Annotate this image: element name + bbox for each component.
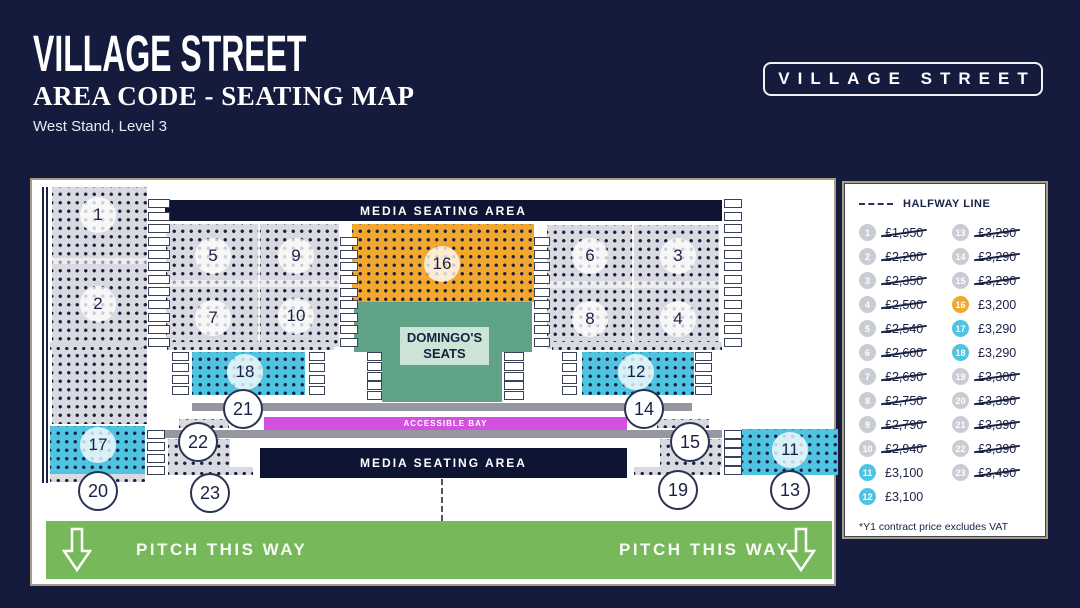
legend-row-section-8: 8£2,750	[859, 392, 952, 409]
price-label: £2,690	[885, 370, 923, 384]
section-badge-10: 10	[859, 440, 876, 457]
stair-step	[562, 352, 577, 361]
stair-step	[724, 224, 742, 233]
block-5-7-divider	[166, 280, 339, 287]
stair-step	[340, 313, 358, 322]
stairs	[309, 352, 325, 395]
section-badge-14: 14	[952, 248, 969, 265]
stair-step	[367, 381, 382, 390]
section-badge-4: 4	[859, 296, 876, 313]
legend-row-section-23: 23£3,490	[952, 464, 1016, 481]
stairs	[504, 352, 524, 400]
stair-step	[172, 386, 189, 395]
section-label-1: 1	[80, 197, 116, 233]
section-circle-20: 20	[78, 471, 118, 511]
stair-step	[172, 375, 189, 384]
stair-step	[724, 300, 742, 309]
stair-step	[147, 442, 165, 451]
stair-step	[148, 300, 170, 309]
price-label: £3,390	[978, 394, 1016, 408]
domingos-line2: SEATS	[423, 346, 465, 362]
price-label: £2,600	[885, 346, 923, 360]
stair-step	[724, 448, 742, 457]
stair-step	[724, 237, 742, 246]
stair-step	[534, 250, 550, 259]
legend-row-section-11: 11£3,100	[859, 464, 952, 481]
stair-step	[147, 454, 165, 463]
price-label: £3,290	[978, 322, 1016, 336]
price-label: £3,390	[978, 418, 1016, 432]
legend-row-section-15: 15£3,290	[952, 272, 1016, 289]
stair-step	[534, 300, 550, 309]
stair-step	[534, 275, 550, 284]
stairs	[172, 352, 189, 395]
stair-step	[340, 300, 358, 309]
stair-step	[147, 430, 165, 439]
stair-step	[367, 362, 382, 371]
legend-row-section-7: 7£2,690	[859, 368, 952, 385]
section-label-8: 8	[572, 301, 608, 337]
section-badge-8: 8	[859, 392, 876, 409]
stairs	[148, 199, 170, 347]
price-label: £3,290	[978, 226, 1016, 240]
legend-row-section-19: 19£3,300	[952, 368, 1016, 385]
section-badge-13: 13	[952, 224, 969, 241]
section-badge-18: 18	[952, 344, 969, 361]
legend-row-section-13: 13£3,290	[952, 224, 1016, 241]
down-arrow-icon	[786, 527, 816, 578]
legend-row-section-16: 16£3,200	[952, 296, 1016, 313]
seat-row-strip	[552, 342, 722, 350]
halfway-line-legend: HALFWAY LINE	[859, 198, 1033, 210]
stair-step	[148, 237, 170, 246]
price-label: £3,290	[978, 346, 1016, 360]
price-label: £3,300	[978, 370, 1016, 384]
section-badge-17: 17	[952, 320, 969, 337]
stairs	[534, 237, 550, 347]
stair-step	[724, 313, 742, 322]
seat-row-strip	[167, 342, 334, 350]
dashed-line-icon	[859, 203, 893, 205]
pitch-this-way-label-left: PITCH THIS WAY	[136, 521, 307, 579]
section-badge-16: 16	[952, 296, 969, 313]
stairs	[147, 430, 165, 475]
price-label: £3,200	[978, 298, 1016, 312]
price-label: £3,100	[885, 490, 923, 504]
stair-step	[724, 199, 742, 208]
stair-step	[309, 386, 325, 395]
stair-step	[562, 375, 577, 384]
stair-step	[148, 212, 170, 221]
stair-step	[309, 352, 325, 361]
block-1-2-divider	[52, 258, 147, 264]
stair-step	[695, 363, 712, 372]
section-badge-5: 5	[859, 320, 876, 337]
stair-step	[504, 362, 524, 371]
price-label: £2,500	[885, 298, 923, 312]
legend-row-section-14: 14£3,290	[952, 248, 1016, 265]
stair-step	[724, 466, 742, 475]
stair-step	[340, 338, 358, 347]
stair-step	[504, 381, 524, 390]
price-label: £2,940	[885, 442, 923, 456]
section-label-11[interactable]: 11	[772, 432, 808, 468]
price-label: £3,390	[978, 442, 1016, 456]
domingos-line1: DOMINGO'S	[407, 330, 482, 346]
walkway-upper	[192, 403, 692, 411]
price-label: £2,790	[885, 418, 923, 432]
section-badge-22: 22	[952, 440, 969, 457]
price-label: £2,750	[885, 394, 923, 408]
stair-step	[309, 363, 325, 372]
stairs	[562, 352, 577, 395]
stairs	[367, 352, 382, 400]
stair-step	[724, 275, 742, 284]
stair-step	[148, 262, 170, 271]
section-label-2: 2	[80, 286, 116, 322]
legend-column-left: 1£1,9502£2,2003£2,3504£2,5005£2,5406£2,6…	[859, 224, 952, 505]
stair-step	[504, 391, 524, 400]
stair-step	[724, 439, 742, 448]
stair-step	[534, 288, 550, 297]
section-label-16[interactable]: 16	[424, 246, 460, 282]
page-subtitle: AREA CODE - SEATING MAP	[33, 81, 435, 112]
section-label-18[interactable]: 18	[227, 354, 263, 390]
legend-row-section-12: 12£3,100	[859, 488, 952, 505]
stair-step	[340, 250, 358, 259]
stair-step	[340, 325, 358, 334]
section-circle-19: 19	[658, 470, 698, 510]
section-label-9: 9	[278, 238, 314, 274]
stair-step	[367, 391, 382, 400]
domingos-seats-label: DOMINGO'S SEATS	[400, 327, 489, 365]
legend-row-section-2: 2£2,200	[859, 248, 952, 265]
section-badge-6: 6	[859, 344, 876, 361]
section-label-6: 6	[572, 238, 608, 274]
stair-step	[534, 237, 550, 246]
accessible-bay-bar: ACCESSIBLE BAY	[264, 417, 627, 430]
stair-step	[340, 275, 358, 284]
section-badge-7: 7	[859, 368, 876, 385]
pitch-this-way-label-right: PITCH THIS WAY	[619, 521, 790, 579]
section-circle-22: 22	[178, 422, 218, 462]
stair-step	[340, 288, 358, 297]
stair-step	[562, 363, 577, 372]
section-badge-12: 12	[859, 488, 876, 505]
stair-step	[340, 262, 358, 271]
seat-row-strip	[50, 342, 142, 350]
legend-row-section-10: 10£2,940	[859, 440, 952, 457]
section-circle-14: 14	[624, 389, 664, 429]
legend-row-section-5: 5£2,540	[859, 320, 952, 337]
section-label-12[interactable]: 12	[618, 354, 654, 390]
left-wall-line	[42, 187, 48, 483]
village-street-sign-badge: VILLAGE STREET	[763, 62, 1043, 96]
stair-step	[172, 352, 189, 361]
seating-map-panel: MEDIA SEATING AREA DOMINGO'S SEATS ACCES…	[30, 178, 836, 586]
section-circle-15: 15	[670, 422, 710, 462]
section-badge-15: 15	[952, 272, 969, 289]
section-label-5: 5	[195, 238, 231, 274]
stair-step	[148, 338, 170, 347]
price-label: £3,100	[885, 466, 923, 480]
halfway-line-label: HALFWAY LINE	[903, 198, 990, 210]
stair-step	[724, 338, 742, 347]
stair-step	[148, 199, 170, 208]
pitch-this-way-strip: PITCH THIS WAY PITCH THIS WAY	[46, 521, 832, 579]
section-label-4: 4	[660, 301, 696, 337]
stair-step	[504, 352, 524, 361]
stand-level-label: West Stand, Level 3	[33, 118, 435, 135]
price-label: £3,290	[978, 250, 1016, 264]
stair-step	[724, 212, 742, 221]
price-label: £1,950	[885, 226, 923, 240]
walkway-lower	[165, 430, 722, 438]
stair-step	[724, 250, 742, 259]
legend-row-section-22: 22£3,390	[952, 440, 1016, 457]
stair-step	[367, 352, 382, 361]
section-badge-3: 3	[859, 272, 876, 289]
down-arrow-icon	[62, 527, 92, 578]
media-seating-area-bottom-banner: MEDIA SEATING AREA	[260, 448, 627, 478]
section-badge-1: 1	[859, 224, 876, 241]
stair-step	[695, 375, 712, 384]
stairs	[724, 430, 742, 475]
legend-row-section-3: 3£2,350	[859, 272, 952, 289]
legend-row-section-4: 4£2,500	[859, 296, 952, 313]
stair-step	[148, 287, 170, 296]
stair-step	[148, 275, 170, 284]
section-circle-21: 21	[223, 389, 263, 429]
legend-row-section-20: 20£3,390	[952, 392, 1016, 409]
stair-step	[724, 262, 742, 271]
section-badge-21: 21	[952, 416, 969, 433]
legend-row-section-6: 6£2,600	[859, 344, 952, 361]
legend-column-right: 13£3,29014£3,29015£3,29016£3,20017£3,290…	[952, 224, 1016, 505]
stair-step	[367, 372, 382, 381]
stair-step	[724, 287, 742, 296]
section-label-7: 7	[195, 300, 231, 336]
header: VILLAGE STREET AREA CODE - SEATING MAP W…	[33, 28, 435, 135]
section-badge-20: 20	[952, 392, 969, 409]
stair-step	[504, 372, 524, 381]
section-badge-19: 19	[952, 368, 969, 385]
stair-step	[172, 363, 189, 372]
legend-row-section-1: 1£1,950	[859, 224, 952, 241]
stair-step	[695, 386, 712, 395]
page-title: VILLAGE STREET	[33, 28, 306, 79]
stair-step	[534, 325, 550, 334]
legend-row-section-17: 17£3,290	[952, 320, 1016, 337]
section-label-17[interactable]: 17	[80, 427, 116, 463]
price-label: £2,200	[885, 250, 923, 264]
stair-step	[534, 262, 550, 271]
stair-step	[147, 466, 165, 475]
stair-step	[534, 313, 550, 322]
section-badge-2: 2	[859, 248, 876, 265]
price-label: £3,290	[978, 274, 1016, 288]
stair-step	[724, 457, 742, 466]
price-legend-panel: HALFWAY LINE 1£1,9502£2,2003£2,3504£2,50…	[844, 183, 1046, 537]
legend-row-section-18: 18£3,290	[952, 344, 1016, 361]
section-label-10: 10	[278, 298, 314, 334]
section-badge-9: 9	[859, 416, 876, 433]
stair-step	[340, 237, 358, 246]
legend-row-section-9: 9£2,790	[859, 416, 952, 433]
section-circle-23: 23	[190, 473, 230, 513]
stair-step	[309, 375, 325, 384]
stair-step	[148, 325, 170, 334]
section-badge-11: 11	[859, 464, 876, 481]
legend-row-section-21: 21£3,390	[952, 416, 1016, 433]
vat-note: *Y1 contract price excludes VAT	[859, 521, 1033, 533]
stair-step	[724, 325, 742, 334]
stairs	[695, 352, 712, 395]
stair-step	[148, 250, 170, 259]
stairs	[724, 199, 742, 347]
stairs	[340, 237, 358, 347]
section-badge-23: 23	[952, 464, 969, 481]
stair-step	[534, 338, 550, 347]
stair-step	[695, 352, 712, 361]
price-label: £2,540	[885, 322, 923, 336]
halfway-line-marker	[441, 479, 443, 521]
media-seating-area-top-banner: MEDIA SEATING AREA	[165, 200, 722, 221]
price-label: £3,490	[978, 466, 1016, 480]
stair-step	[148, 224, 170, 233]
price-label: £2,350	[885, 274, 923, 288]
section-circle-13: 13	[770, 470, 810, 510]
stair-step	[148, 313, 170, 322]
stair-step	[562, 386, 577, 395]
block-6-8-divider	[547, 281, 719, 288]
stair-step	[724, 430, 742, 439]
section-label-3: 3	[660, 238, 696, 274]
